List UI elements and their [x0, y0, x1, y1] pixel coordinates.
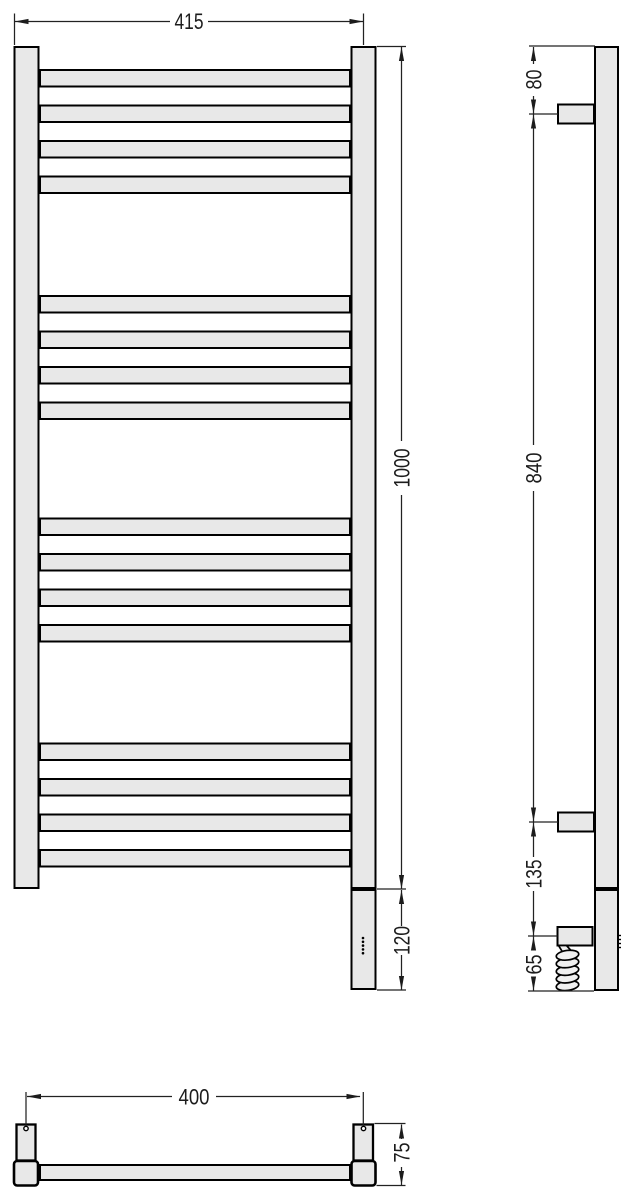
- svg-text:75: 75: [390, 1143, 415, 1163]
- svg-text:120: 120: [390, 926, 415, 955]
- svg-text:840: 840: [522, 453, 547, 484]
- svg-text:135: 135: [522, 860, 547, 889]
- svg-text:415: 415: [175, 9, 204, 34]
- svg-text:1000: 1000: [390, 449, 415, 488]
- svg-text:65: 65: [522, 955, 547, 975]
- svg-text:400: 400: [179, 1085, 210, 1110]
- svg-text:80: 80: [522, 70, 547, 90]
